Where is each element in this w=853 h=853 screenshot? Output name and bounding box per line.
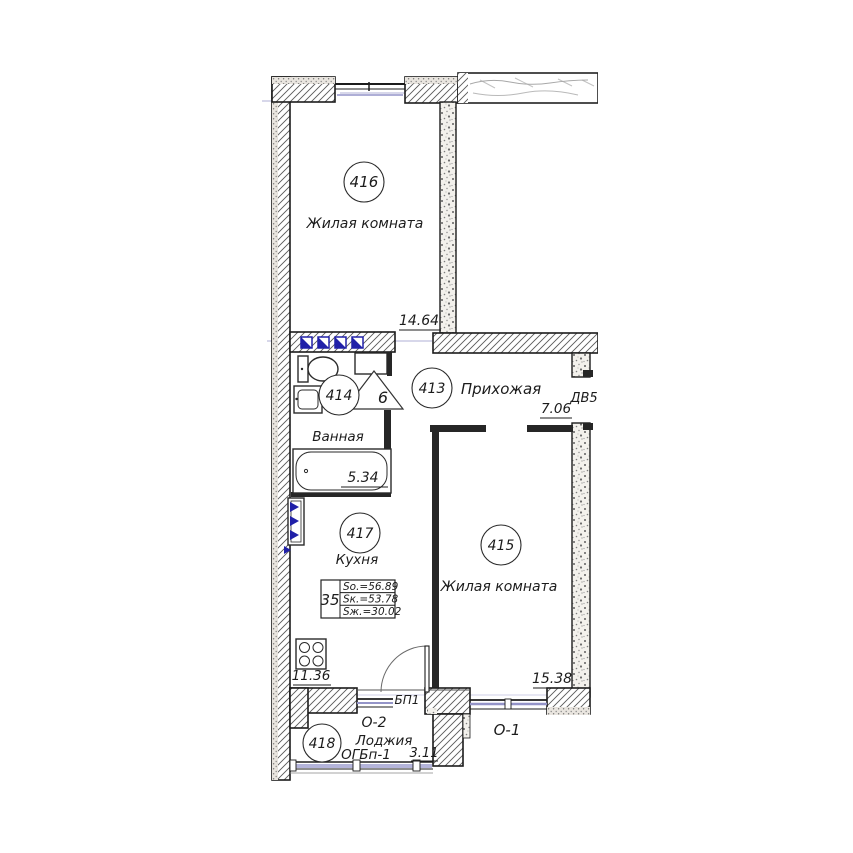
wall-415-left [432,432,439,697]
window-O1-label: О-1 [494,721,521,739]
wall-loggia-left-step [290,688,308,728]
area-living: Sж.=30.02 [343,606,402,618]
room-415-name: Жилая комната [440,579,558,595]
room-414-area: 5.34 [347,470,378,486]
window-O1 [470,699,547,709]
wall-sketch-band [458,73,598,103]
room-415-area: 15.38 [532,671,572,687]
blue-marker-square [301,337,312,348]
wall-415-top-right [527,425,573,432]
apartment-info-table: 35 Sо.=56.89 Sк.=53.78 Sж.=30.02 [320,580,401,618]
floor-plan-svg: 35 Sо.=56.89 Sк.=53.78 Sж.=30.02 416 Жил… [0,0,853,853]
room-417-name: Кухня [336,552,379,568]
wall-left-insulation-band [272,77,278,780]
room-416-name: Жилая комната [306,216,424,232]
loggia-glazing-type: ОГБп-1 [341,747,391,763]
blue-marker-square [352,337,363,348]
window-O2-label: О-2 [362,715,387,731]
room-414-number: 414 [326,388,353,404]
room-417-area: 11.36 [292,668,331,684]
blue-marker-square [335,337,346,348]
room-418-number: 418 [309,736,336,752]
balcony-door-BP1 [381,646,429,692]
room-416-number: 416 [350,173,379,191]
room-417-number: 417 [347,526,374,542]
floor-plan: 35 Sо.=56.89 Sк.=53.78 Sж.=30.02 416 Жил… [262,73,598,780]
room-413-number: 413 [419,381,446,397]
apartment-number: 35 [320,591,339,609]
entry-door-label: ДВ5 [569,391,597,406]
wall-415-top-left [430,425,486,432]
room-418-area: 3.11 [410,746,439,761]
balcony-door-label: БП1 [395,693,420,707]
sink [294,386,322,413]
room-413-area: 7.06 [541,401,571,417]
blue-marker-square [318,337,329,348]
vent-shaft-number: 6 [378,388,388,407]
wall-416-right [440,102,456,333]
wall-right-lower [572,423,590,697]
room-416-area: 14.64 [399,313,439,329]
room-415-number: 415 [488,538,515,554]
wall-hallway-top [433,333,598,353]
stove [296,639,326,669]
window-O2 [357,699,393,707]
area-total: Sо.=56.89 [343,581,399,593]
room-414-name: Ванная [312,429,364,445]
doors [381,646,429,692]
room-413-name: Прихожая [461,380,541,398]
area-apartment: Sк.=53.78 [343,594,399,606]
